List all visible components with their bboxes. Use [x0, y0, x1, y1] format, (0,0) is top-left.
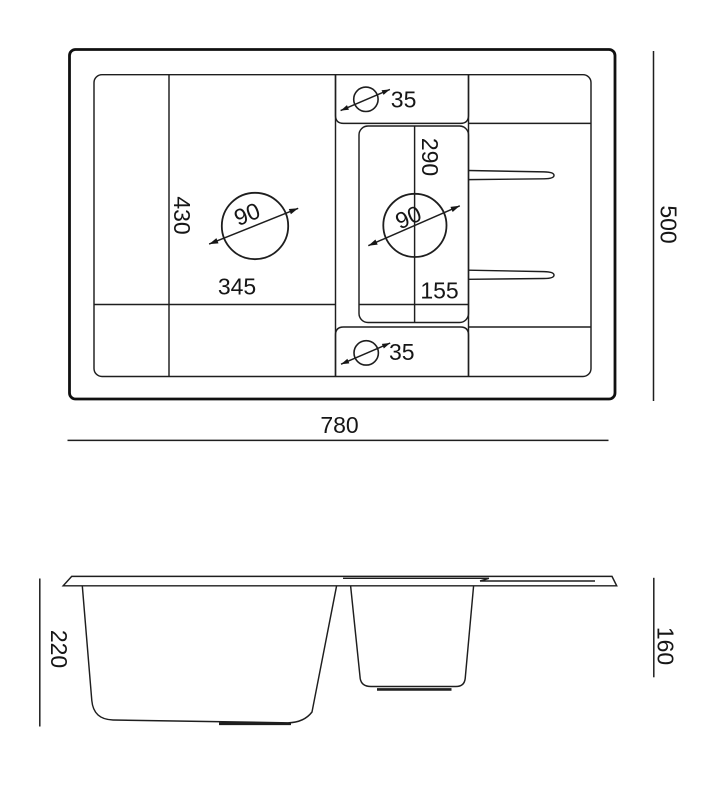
svg-text:35: 35: [391, 87, 417, 113]
svg-text:500: 500: [656, 205, 682, 243]
svg-text:345: 345: [218, 274, 256, 300]
svg-text:35: 35: [389, 339, 415, 365]
svg-text:90: 90: [391, 200, 425, 234]
svg-text:780: 780: [320, 412, 358, 438]
svg-text:290: 290: [417, 138, 443, 176]
svg-text:90: 90: [230, 197, 263, 231]
svg-text:160: 160: [653, 627, 679, 665]
svg-text:430: 430: [169, 196, 195, 234]
svg-text:220: 220: [46, 630, 72, 668]
svg-text:155: 155: [420, 278, 458, 304]
